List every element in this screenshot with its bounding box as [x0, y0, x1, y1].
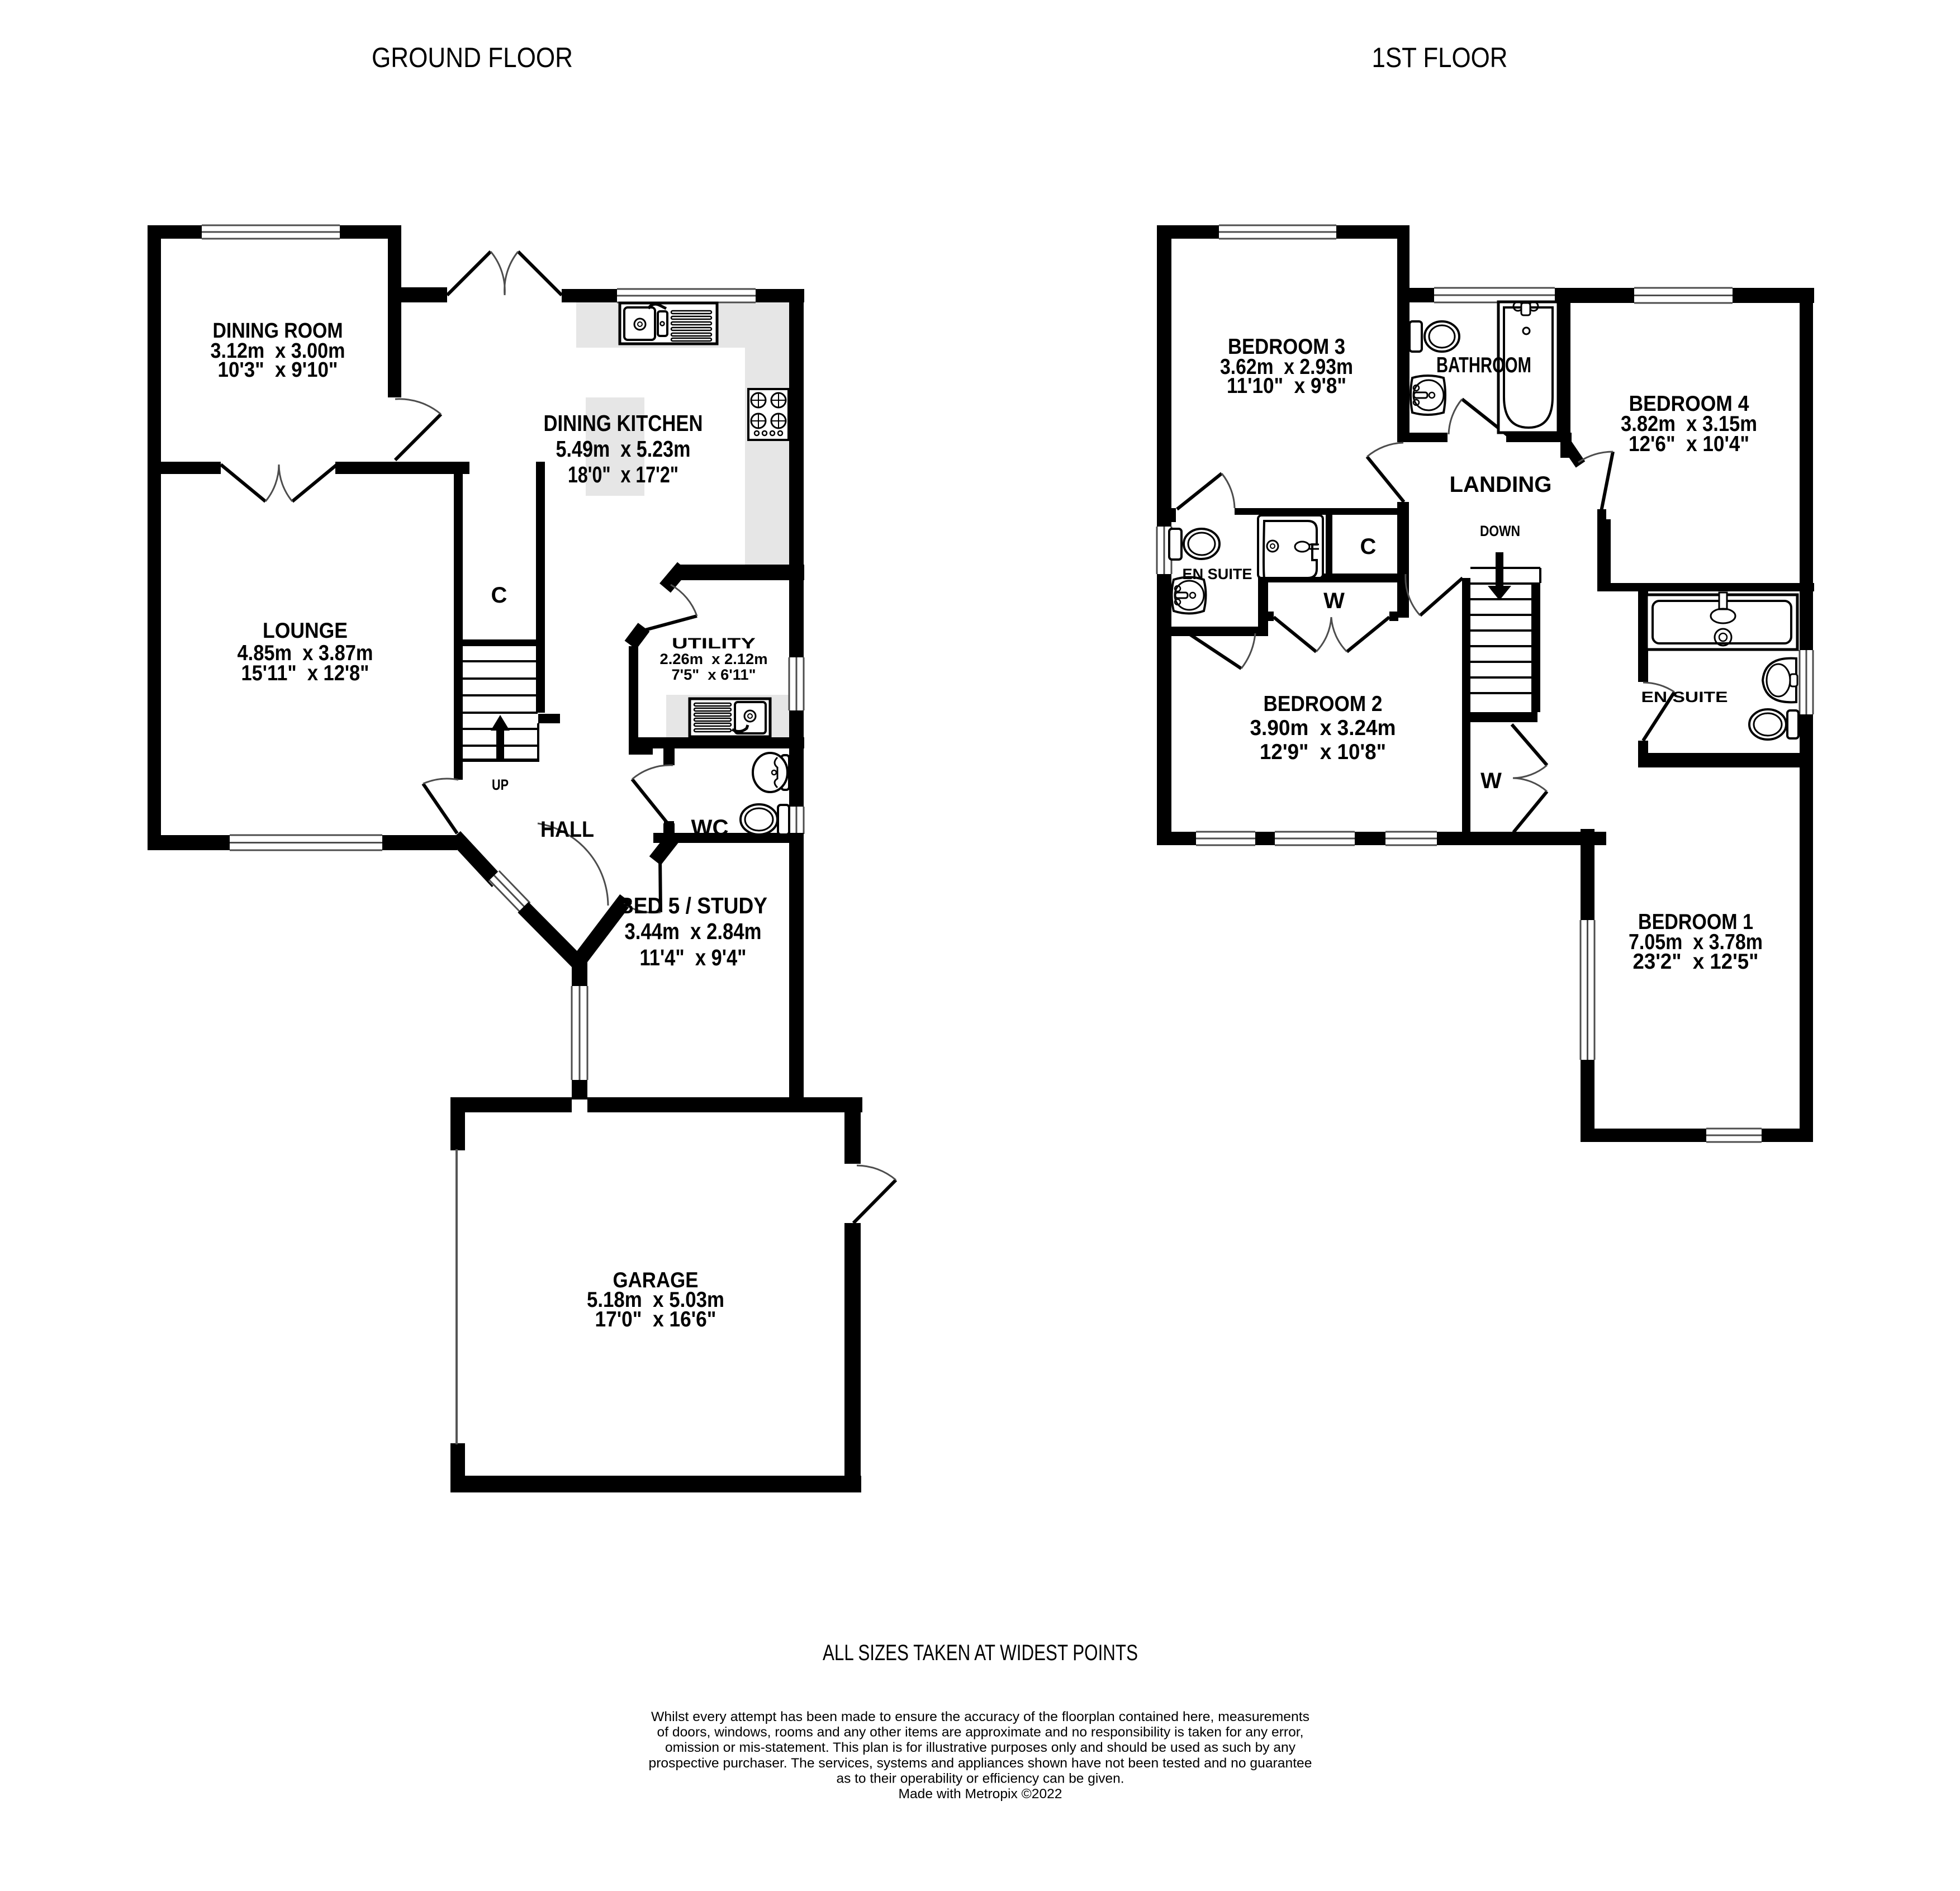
svg-text:23'2" x 12'5": 23'2" x 12'5": [1633, 950, 1759, 974]
svg-text:DINING KITCHEN: DINING KITCHEN: [544, 410, 703, 436]
svg-text:UP: UP: [492, 776, 509, 793]
svg-text:WC: WC: [691, 816, 729, 840]
svg-text:3.44m x 2.84m: 3.44m x 2.84m: [625, 918, 762, 944]
svg-text:2.26m x 2.12m: 2.26m x 2.12m: [660, 651, 768, 667]
svg-text:W: W: [1323, 589, 1345, 613]
svg-text:EN SUITE: EN SUITE: [1183, 566, 1252, 582]
svg-text:BED 5 / STUDY: BED 5 / STUDY: [619, 893, 767, 918]
svg-text:BEDROOM 2: BEDROOM 2: [1264, 692, 1383, 716]
svg-text:prospective purchaser. The ser: prospective purchaser. The services, sys…: [649, 1756, 1312, 1771]
svg-text:GROUND FLOOR: GROUND FLOOR: [372, 42, 573, 73]
svg-text:10'3" x 9'10": 10'3" x 9'10": [218, 358, 338, 382]
svg-text:Made with Metropix ©2022: Made with Metropix ©2022: [899, 1786, 1062, 1802]
svg-text:17'0" x 16'6": 17'0" x 16'6": [595, 1307, 716, 1331]
svg-text:BATHROOM: BATHROOM: [1436, 353, 1531, 377]
svg-text:11'4" x 9'4": 11'4" x 9'4": [640, 945, 747, 970]
svg-text:7'5" x 6'11": 7'5" x 6'11": [672, 666, 756, 683]
svg-text:EN SUITE: EN SUITE: [1641, 689, 1728, 705]
svg-text:HALL: HALL: [540, 817, 594, 842]
svg-text:C: C: [1360, 534, 1377, 559]
svg-text:as to their operability or eff: as to their operability or efficiency ca…: [837, 1771, 1124, 1786]
svg-text:12'6" x 10'4": 12'6" x 10'4": [1629, 432, 1749, 456]
svg-text:11'10" x 9'8": 11'10" x 9'8": [1227, 374, 1346, 398]
svg-text:18'0" x 17'2": 18'0" x 17'2": [568, 462, 678, 487]
svg-text:Whilst every attempt has been: Whilst every attempt has been made to en…: [651, 1709, 1309, 1724]
svg-text:1ST FLOOR: 1ST FLOOR: [1372, 42, 1508, 73]
svg-text:LOUNGE: LOUNGE: [263, 619, 348, 643]
svg-text:LANDING: LANDING: [1450, 472, 1552, 497]
svg-text:15'11" x 12'8": 15'11" x 12'8": [241, 661, 369, 685]
svg-text:omission or mis-statement. Thi: omission or mis-statement. This plan is …: [665, 1740, 1295, 1755]
svg-text:DOWN: DOWN: [1480, 523, 1520, 539]
svg-text:W: W: [1480, 769, 1502, 793]
svg-text:12'9" x 10'8": 12'9" x 10'8": [1260, 740, 1386, 764]
svg-text:of doors, windows, rooms and a: of doors, windows, rooms and any other i…: [657, 1725, 1304, 1740]
svg-text:UTILITY: UTILITY: [672, 635, 756, 652]
svg-text:C: C: [491, 583, 507, 608]
svg-text:ALL SIZES TAKEN AT WIDEST POIN: ALL SIZES TAKEN AT WIDEST POINTS: [823, 1641, 1138, 1665]
svg-text:5.49m x 5.23m: 5.49m x 5.23m: [556, 436, 691, 462]
svg-text:3.90m x 3.24m: 3.90m x 3.24m: [1250, 716, 1396, 740]
